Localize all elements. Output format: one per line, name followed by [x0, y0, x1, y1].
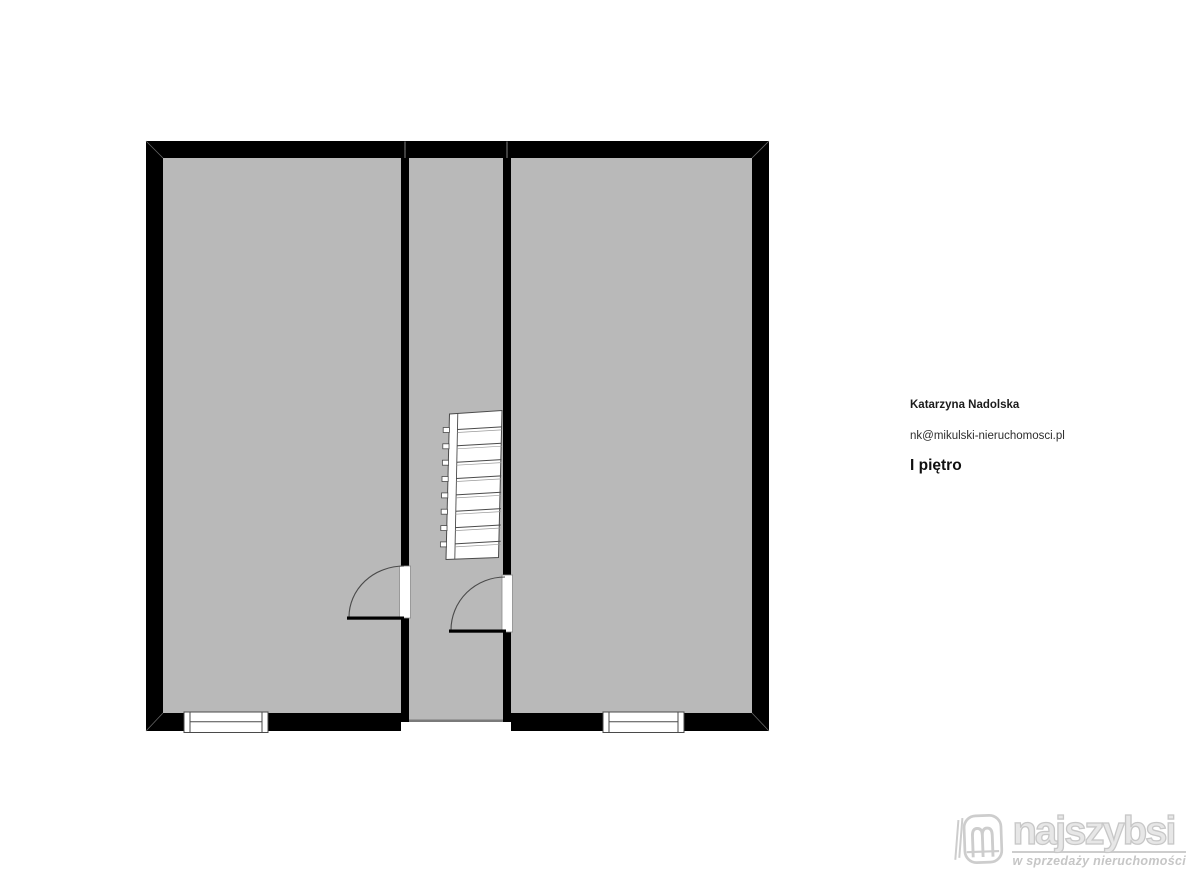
- hall-bottom-opening: [401, 722, 511, 733]
- logo-tagline: w sprzedaży nieruchomości: [1012, 855, 1186, 868]
- logo-m-book-icon: [949, 805, 1005, 868]
- door-room-left-opening: [400, 566, 411, 618]
- window-room-right: [603, 712, 684, 733]
- room-left-floor: [163, 158, 401, 713]
- room-right-floor: [511, 158, 752, 713]
- door-room-right-leaf: [449, 630, 506, 633]
- staircase: [440, 411, 502, 560]
- agent-email: nk@mikulski-nieruchomosci.pl: [910, 430, 1065, 443]
- brand-logo: najszybsi w sprzedaży nieruchomości: [949, 805, 1186, 868]
- door-room-left-leaf: [347, 617, 404, 620]
- floor-title: I piętro: [910, 457, 1065, 475]
- hall-threshold: [409, 720, 503, 723]
- staircase-outline: [446, 411, 502, 560]
- window-room-left: [184, 712, 268, 733]
- contact-info: Katarzyna Nadolska nk@mikulski-nieruchom…: [910, 399, 1065, 475]
- door-room-right-opening: [502, 575, 513, 632]
- agent-name: Katarzyna Nadolska: [910, 399, 1065, 412]
- logo-wordmark: najszybsi: [1012, 814, 1186, 848]
- logo-text-block: najszybsi w sprzedaży nieruchomości: [1012, 814, 1186, 868]
